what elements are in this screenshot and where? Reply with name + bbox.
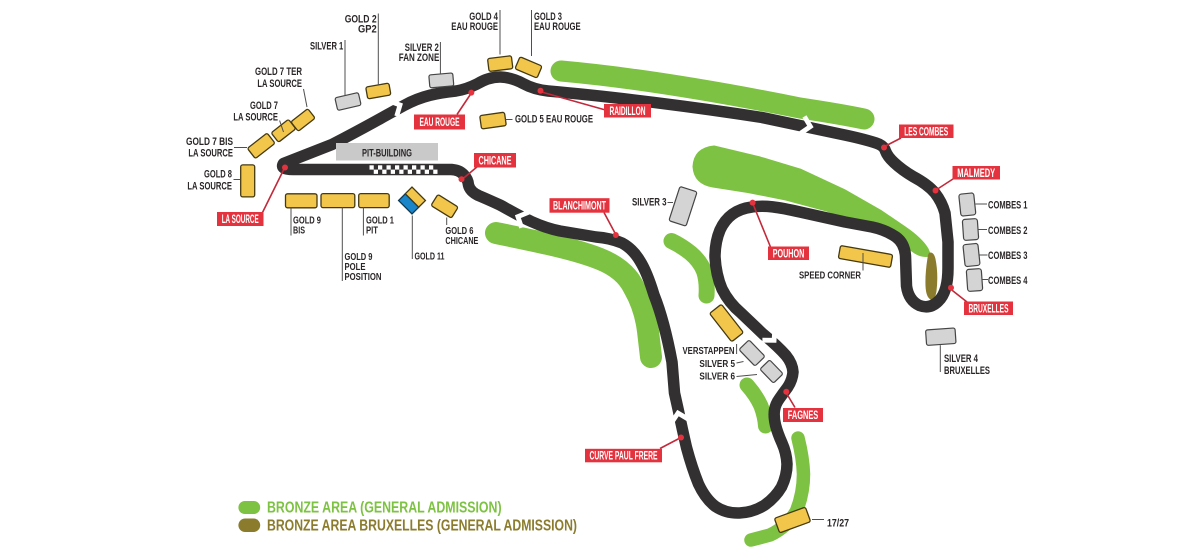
svg-text:COMBES 2: COMBES 2 (988, 225, 1028, 237)
svg-text:CHICANE: CHICANE (479, 153, 512, 167)
svg-text:BRUXELLES: BRUXELLES (969, 301, 1009, 315)
svg-text:CURVE PAUL FRERE: CURVE PAUL FRERE (590, 449, 658, 463)
svg-text:MALMEDY: MALMEDY (957, 166, 995, 180)
svg-text:FAGNES: FAGNES (788, 408, 819, 422)
svg-text:GOLD 7 BIS: GOLD 7 BIS (186, 136, 233, 148)
svg-text:EAU ROUGE: EAU ROUGE (420, 115, 460, 129)
svg-text:GOLD 11: GOLD 11 (415, 252, 445, 263)
svg-text:BIS: BIS (293, 225, 305, 236)
svg-text:BLANCHIMONT: BLANCHIMONT (553, 199, 606, 213)
svg-text:LA SOURCE: LA SOURCE (233, 112, 278, 124)
svg-text:LA SOURCE: LA SOURCE (187, 180, 232, 192)
svg-text:FAN ZONE: FAN ZONE (399, 52, 440, 64)
svg-text:LES COMBES: LES COMBES (904, 124, 948, 138)
svg-text:BRONZE AREA (GENERAL ADMISSION: BRONZE AREA (GENERAL ADMISSION) (267, 500, 502, 517)
svg-text:GOLD 7: GOLD 7 (250, 100, 278, 112)
svg-text:PIT: PIT (366, 225, 378, 236)
svg-text:POUHON: POUHON (773, 246, 805, 260)
svg-text:LA SOURCE: LA SOURCE (188, 148, 233, 160)
svg-text:COMBES 1: COMBES 1 (988, 200, 1028, 212)
svg-text:SILVER 6: SILVER 6 (699, 372, 735, 383)
svg-text:CHICANE: CHICANE (445, 236, 478, 247)
svg-text:17/27: 17/27 (827, 518, 849, 530)
svg-text:GP2: GP2 (358, 24, 377, 36)
svg-text:GOLD 8: GOLD 8 (204, 169, 232, 181)
svg-text:GOLD 7 TER: GOLD 7 TER (255, 66, 302, 78)
svg-text:GOLD 5 EAU ROUGE: GOLD 5 EAU ROUGE (515, 114, 593, 126)
svg-text:SILVER 3: SILVER 3 (632, 197, 667, 209)
svg-text:SILVER 5: SILVER 5 (699, 359, 735, 370)
svg-text:SILVER 1: SILVER 1 (310, 40, 343, 52)
svg-text:VERSTAPPEN: VERSTAPPEN (683, 346, 735, 357)
svg-text:LA SOURCE: LA SOURCE (257, 78, 302, 90)
svg-text:POSITION: POSITION (345, 272, 382, 283)
svg-text:EAU ROUGE: EAU ROUGE (534, 21, 581, 33)
svg-text:SPEED CORNER: SPEED CORNER (799, 271, 862, 282)
svg-text:PIT-BUILDING: PIT-BUILDING (362, 148, 412, 160)
svg-text:LA SOURCE: LA SOURCE (222, 212, 259, 226)
svg-text:EAU ROUGE: EAU ROUGE (451, 21, 498, 33)
svg-text:RAIDILLON: RAIDILLON (610, 104, 646, 118)
svg-text:BRONZE AREA BRUXELLES (GENERAL: BRONZE AREA BRUXELLES (GENERAL ADMISSION… (267, 518, 577, 535)
svg-text:BRUXELLES: BRUXELLES (944, 365, 990, 377)
svg-text:COMBES 3: COMBES 3 (988, 250, 1028, 262)
svg-text:SILVER 4: SILVER 4 (944, 353, 978, 365)
svg-text:COMBES 4: COMBES 4 (988, 275, 1028, 287)
